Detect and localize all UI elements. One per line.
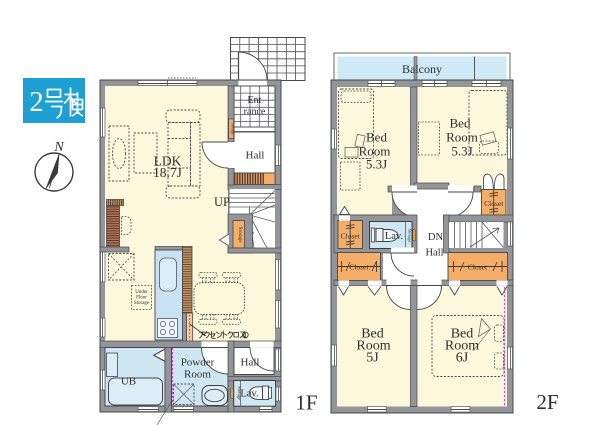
svg-text:6J: 6J	[456, 351, 469, 366]
svg-text:Storage: Storage	[230, 122, 235, 135]
svg-text:rance: rance	[244, 107, 266, 118]
svg-text:Hall: Hall	[425, 248, 443, 259]
svg-text:2: 2	[29, 86, 44, 118]
svg-text:5.3J: 5.3J	[366, 157, 387, 172]
svg-text:Storage: Storage	[408, 228, 413, 242]
svg-text:2F: 2F	[536, 390, 558, 414]
svg-text:1F: 1F	[295, 391, 317, 415]
svg-text:Closet: Closet	[341, 231, 361, 240]
svg-text:Room: Room	[446, 130, 478, 145]
svg-text:Hall: Hall	[241, 357, 260, 369]
svg-text:Closet: Closet	[484, 199, 504, 208]
svg-text:DN: DN	[428, 232, 444, 243]
svg-text:UB: UB	[121, 376, 136, 388]
svg-text:N: N	[53, 140, 64, 155]
svg-text:Floor: Floor	[136, 296, 147, 301]
svg-text:Lav.: Lav.	[240, 389, 258, 400]
svg-text:UP: UP	[214, 195, 230, 209]
svg-text:Under: Under	[135, 290, 148, 295]
svg-text:5.3J: 5.3J	[451, 144, 472, 159]
svg-text:Lav.: Lav.	[385, 231, 403, 242]
svg-text:Bed: Bed	[366, 130, 387, 145]
svg-text:Storage: Storage	[134, 301, 150, 306]
svg-text:Room: Room	[184, 369, 211, 381]
svg-text:Closet: Closet	[468, 263, 488, 272]
svg-text:Bed: Bed	[450, 116, 471, 131]
svg-text:Ent: Ent	[248, 95, 262, 106]
svg-text:Storage: Storage	[237, 227, 243, 244]
svg-text:Powder: Powder	[181, 357, 215, 369]
svg-text:Hall: Hall	[246, 150, 265, 162]
svg-text:Balcony: Balcony	[402, 62, 442, 76]
svg-text:Closet: Closet	[349, 263, 369, 272]
svg-text:5J: 5J	[366, 351, 379, 366]
svg-text:18.7J: 18.7J	[153, 165, 182, 180]
